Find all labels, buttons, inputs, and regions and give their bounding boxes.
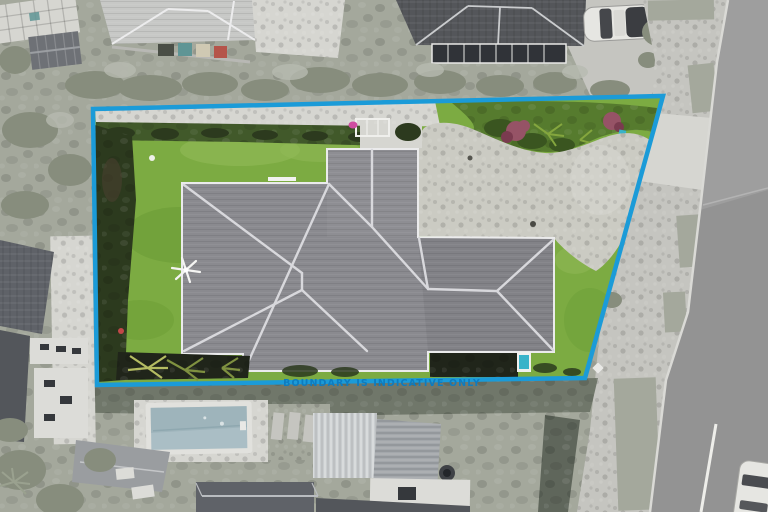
drain-cover	[468, 156, 473, 161]
pad-texture	[252, 0, 345, 58]
drain-cover	[530, 221, 536, 227]
parked-car-top	[583, 4, 653, 42]
car-windshield	[599, 8, 613, 39]
teal-deck-item	[29, 12, 40, 21]
pool-ladder	[240, 421, 246, 430]
lawn-object	[149, 155, 155, 161]
boundary-label: BOUNDARY IS INDICATIVE ONLY	[283, 378, 481, 389]
property	[80, 90, 680, 390]
brown-patch	[102, 158, 122, 202]
aerial-photo-canvas: BOUNDARY IS INDICATIVE ONLY	[0, 0, 768, 512]
conservatory-roof	[432, 44, 566, 63]
stepping-stones	[271, 410, 317, 443]
pink-item	[349, 122, 358, 129]
red-flower	[118, 328, 124, 334]
gutter-highlight	[268, 177, 296, 181]
aerial-photo: BOUNDARY IS INDICATIVE ONLY	[0, 0, 768, 512]
neighbor-shed	[28, 31, 82, 70]
entry-shrub	[395, 123, 421, 141]
